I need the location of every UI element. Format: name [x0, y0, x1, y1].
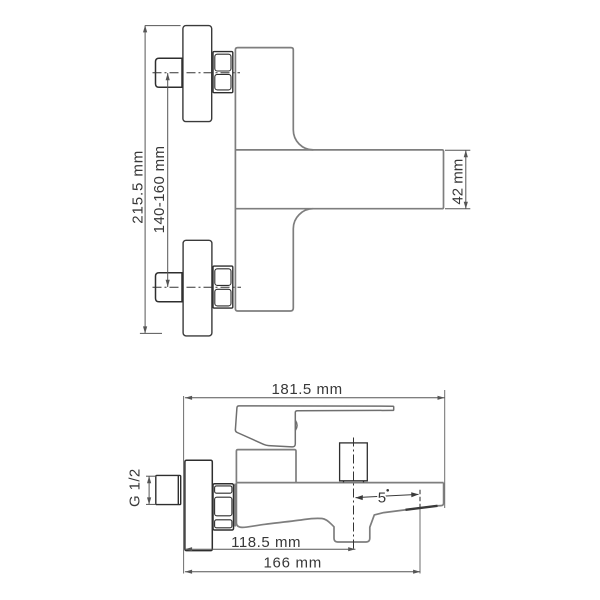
svg-text:166 mm: 166 mm: [264, 555, 322, 572]
svg-text:G 1/2: G 1/2: [127, 468, 144, 507]
svg-text:181.5 mm: 181.5 mm: [272, 381, 343, 398]
svg-text:140-160 mm: 140-160 mm: [151, 146, 168, 234]
svg-text:42 mm: 42 mm: [449, 159, 466, 205]
svg-text:5: 5: [378, 490, 386, 507]
svg-text:215.5 mm: 215.5 mm: [130, 150, 147, 224]
svg-text:118.5 mm: 118.5 mm: [231, 534, 301, 551]
